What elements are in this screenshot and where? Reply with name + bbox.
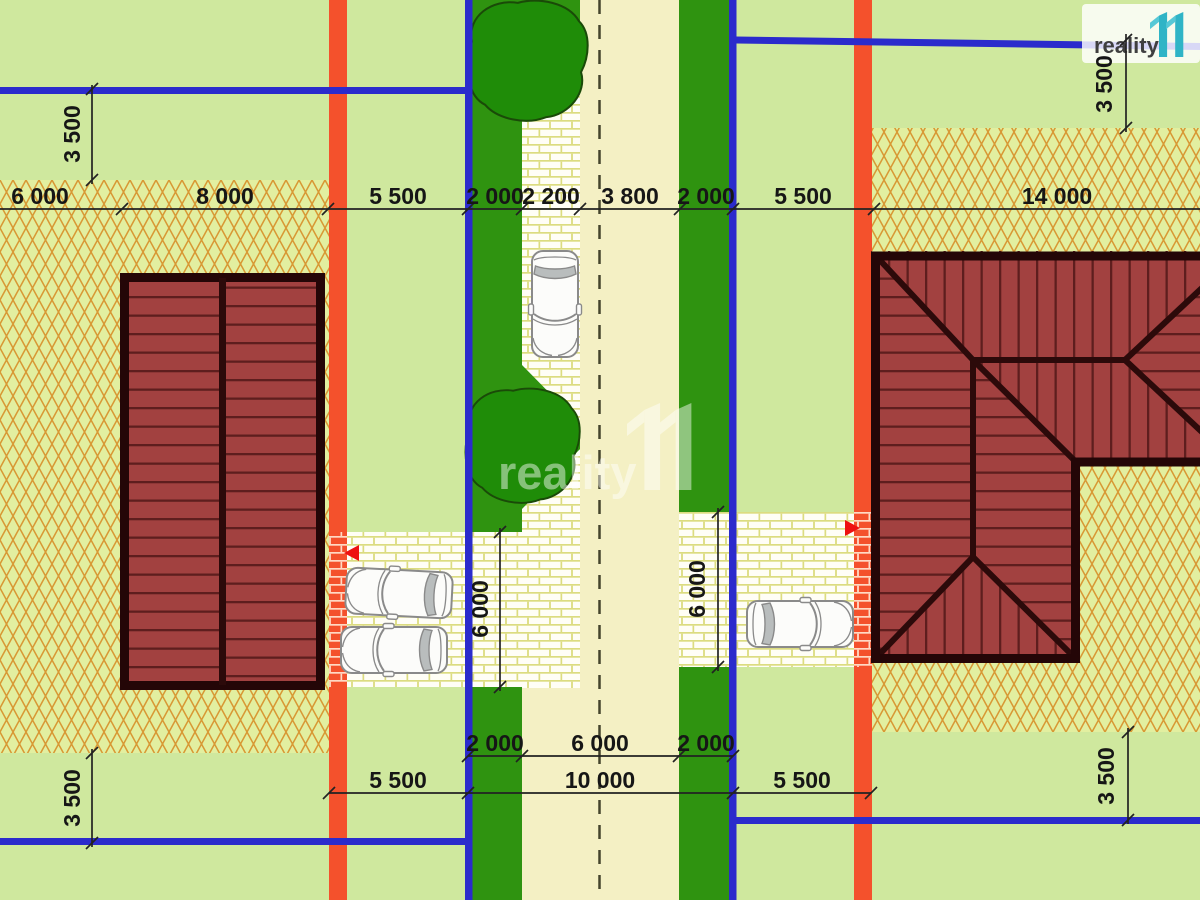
car-left-driveway-2 bbox=[341, 624, 447, 677]
car-road-parking bbox=[529, 251, 582, 357]
dim-label: 2 000 bbox=[677, 730, 735, 756]
dim-label: 10 000 bbox=[565, 767, 635, 793]
watermark-text: reality bbox=[498, 446, 636, 499]
utility-line-vertical-left bbox=[465, 0, 473, 900]
tree-icon bbox=[468, 1, 588, 121]
dim-label: 6 000 bbox=[684, 560, 710, 618]
dim-label: 8 000 bbox=[196, 183, 254, 209]
site-plan: reality reality bbox=[0, 0, 1200, 900]
site-plan-drawing: reality reality bbox=[0, 0, 1200, 900]
car-right-driveway bbox=[747, 598, 853, 651]
dim-label: 3 500 bbox=[59, 105, 85, 163]
dim-label: 5 500 bbox=[369, 767, 427, 793]
dim-label: 6 000 bbox=[571, 730, 629, 756]
dim-label: 2 000 bbox=[677, 183, 735, 209]
driveway-right-over-boundary bbox=[854, 512, 872, 667]
boundary-strip-right bbox=[854, 0, 872, 900]
dim-label: 5 500 bbox=[774, 183, 832, 209]
dim-label: 2 000 bbox=[466, 730, 524, 756]
dim-label: 5 500 bbox=[773, 767, 831, 793]
dim-label: 6 000 bbox=[11, 183, 69, 209]
boundary-strip-left bbox=[329, 0, 347, 900]
dim-label: 3 500 bbox=[1091, 55, 1117, 113]
dim-label: 6 000 bbox=[467, 580, 493, 638]
utility-line-top-left bbox=[0, 87, 465, 94]
dim-label: 2 000 bbox=[466, 183, 524, 209]
dim-label: 2 200 bbox=[522, 183, 580, 209]
dim-label: 14 000 bbox=[1022, 183, 1092, 209]
utility-line-vertical-right bbox=[729, 0, 737, 900]
car-left-driveway-1 bbox=[345, 564, 454, 622]
dim-label: 5 500 bbox=[369, 183, 427, 209]
logo: reality bbox=[1082, 4, 1200, 63]
dim-label: 3 500 bbox=[59, 769, 85, 827]
dim-label: 3 800 bbox=[601, 183, 659, 209]
dim-label: 3 500 bbox=[1093, 747, 1119, 805]
house-left-roof bbox=[125, 278, 321, 686]
utility-line-bottom-left bbox=[0, 838, 465, 845]
